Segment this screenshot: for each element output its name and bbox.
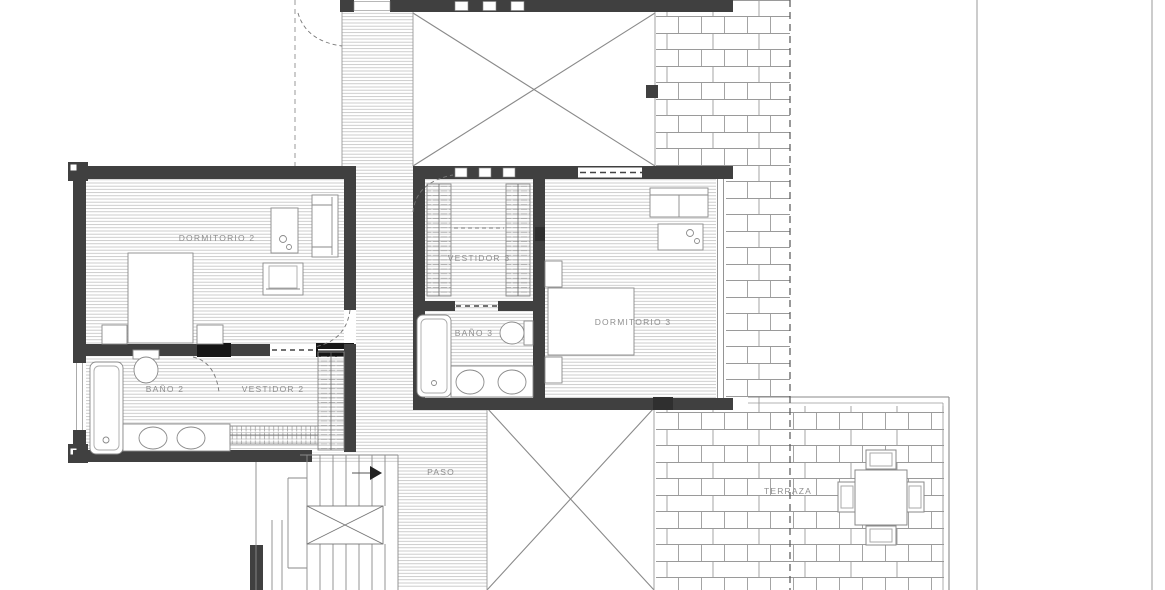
wall-bottom-pier: [653, 397, 673, 410]
terraza-chair-left-seat: [841, 486, 853, 508]
floor-plan-canvas: DORMITORIO 2 VESTIDOR 3 BAÑO 3 DORMITORI…: [0, 0, 1165, 590]
bano2-sink-2: [177, 427, 205, 449]
room-label-dormitorio-2: DORMITORIO 2: [179, 233, 256, 243]
dorm2-bed: [128, 253, 193, 343]
floor-plan-page: DORMITORIO 2 VESTIDOR 3 BAÑO 3 DORMITORI…: [0, 0, 1165, 590]
dorm3-desk: [658, 224, 703, 250]
room-label-bano-2: BAÑO 2: [146, 384, 184, 394]
door-jamb-dorm3: [535, 227, 545, 241]
window-left-opening: [73, 363, 86, 430]
window-mid-2: [479, 168, 491, 177]
dorm2-desk-lamp-2: [287, 245, 292, 250]
dorm3-nightstand-top: [545, 261, 562, 287]
door-opening-top: [354, 2, 390, 11]
terrace-door-jamb: [646, 85, 658, 98]
bano3-bathtub-drain: [432, 381, 437, 386]
wall-dorm2-top: [73, 166, 356, 179]
column-top-left-core: [71, 165, 77, 171]
wall-stair-stub: [250, 545, 263, 590]
bano3-toilet-bowl: [500, 322, 524, 344]
wall-vestidor3-right: [533, 178, 545, 410]
terraza-chair-top-seat: [870, 453, 892, 466]
dormitorio-2-floor: [86, 179, 344, 345]
fitment-bold-1: [197, 343, 231, 357]
bano2-bathtub-drain: [103, 437, 109, 443]
bano2-toilet-bowl: [134, 357, 158, 383]
bano3-toilet-tank: [524, 321, 533, 345]
room-label-vestidor-2: VESTIDOR 2: [242, 384, 305, 394]
dorm2-desk-lamp-1: [280, 236, 287, 243]
bano3-sink-1: [456, 370, 484, 394]
room-label-bano-3: BAÑO 3: [455, 328, 493, 338]
window-mid-3: [503, 168, 515, 177]
wall-bano3-divider-right: [498, 301, 533, 311]
wall-bano3-divider-left: [413, 301, 455, 311]
wall-vestidor2-right: [344, 344, 356, 452]
dorm2-sofa: [312, 195, 338, 257]
dorm2-armchair-seat: [269, 266, 297, 288]
wall-top: [390, 0, 733, 12]
window-mid-1: [455, 168, 467, 177]
dorm3-desk-lamp-1: [687, 230, 694, 237]
bano3-sink-2: [498, 370, 526, 394]
wall-dorm2-right: [344, 166, 356, 310]
room-label-terraza: TERRAZA: [764, 486, 812, 496]
bano2-sink-1: [139, 427, 167, 449]
void-bottom: [487, 408, 654, 590]
brick-strip-right: [726, 0, 790, 406]
dorm2-desk: [271, 208, 298, 253]
terraza-table: [855, 470, 907, 525]
room-label-dormitorio-3: DORMITORIO 3: [595, 317, 672, 327]
wall-bottom-long: [413, 398, 733, 410]
window-top-2: [483, 2, 496, 11]
window-top-1: [455, 2, 468, 11]
dorm2-nightstand-right: [197, 325, 223, 344]
dorm3-nightstand-bottom: [545, 357, 562, 383]
wall-top-stub: [340, 0, 354, 12]
dorm3-desk-lamp-2: [695, 239, 700, 244]
terraza-chair-bottom-seat: [870, 529, 892, 542]
terraza-chair-right-seat: [909, 486, 921, 508]
room-label-vestidor-3: VESTIDOR 3: [448, 253, 511, 263]
window-top-3: [511, 2, 524, 11]
brick-area-top: [656, 0, 730, 166]
dorm2-nightstand-left: [102, 325, 127, 344]
room-label-paso: PASO: [427, 467, 455, 477]
